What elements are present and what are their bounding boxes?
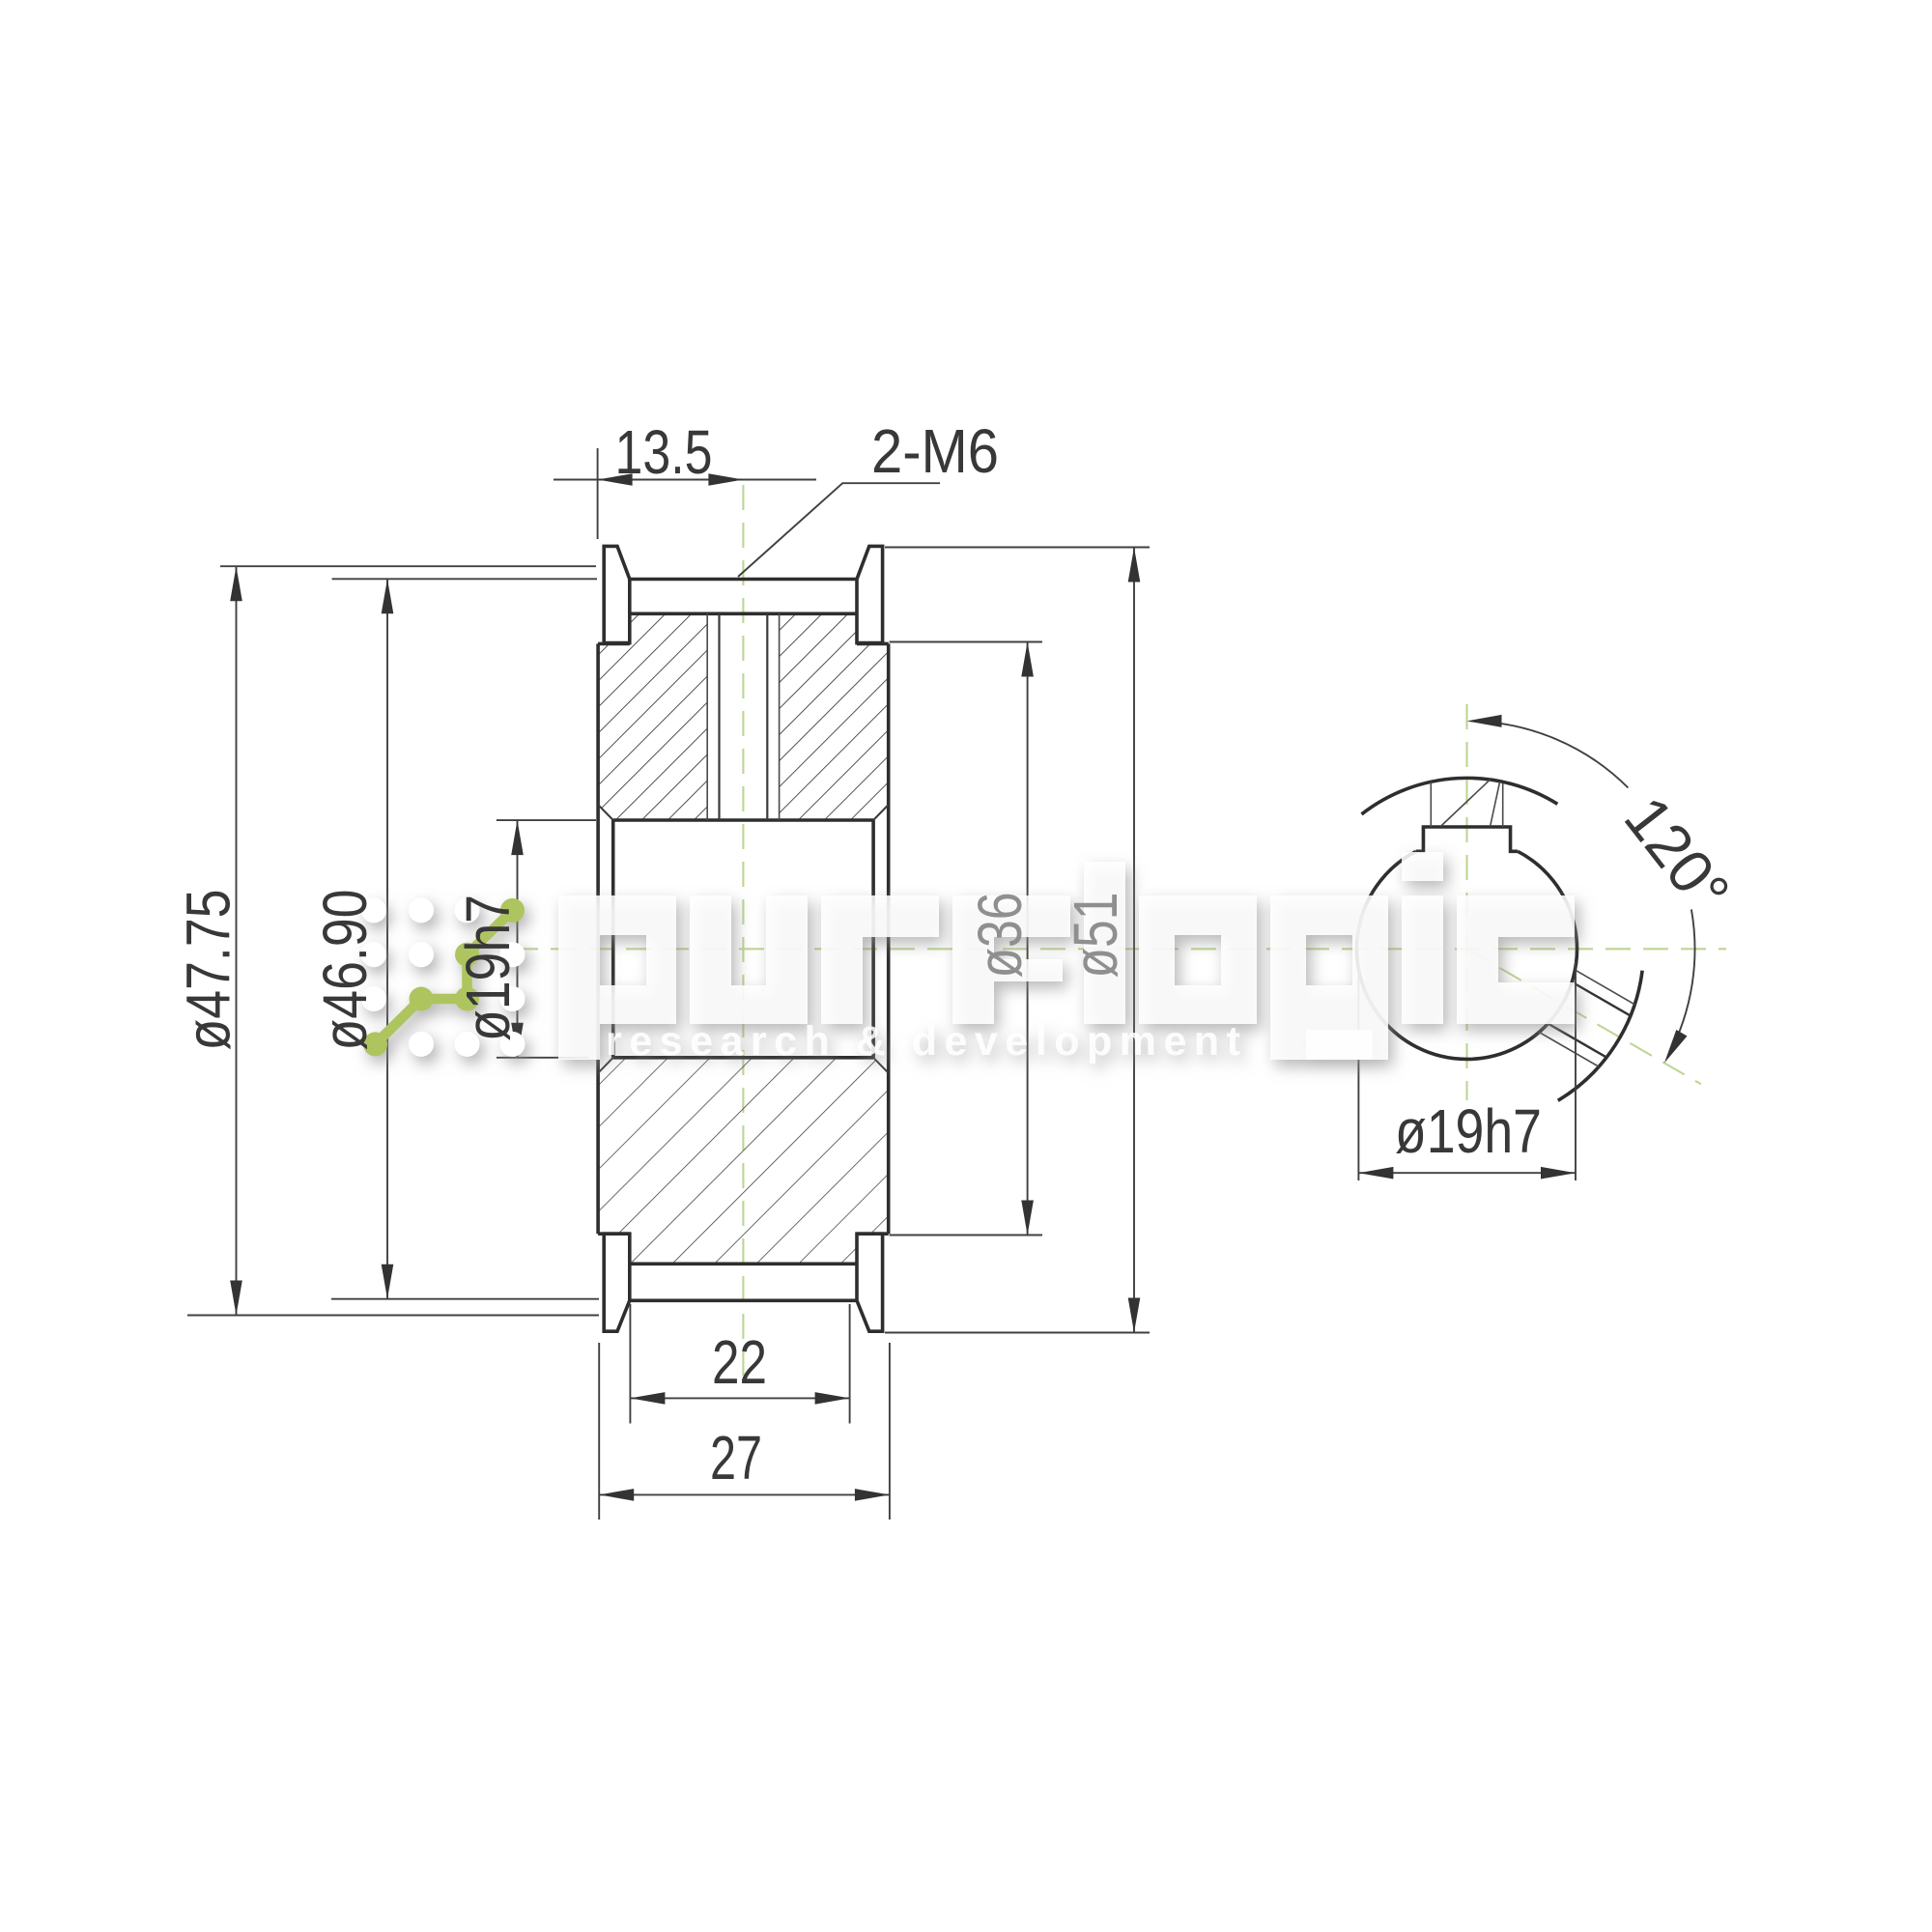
svg-text:ø19h7: ø19h7: [453, 895, 523, 1041]
svg-text:ø36: ø36: [965, 893, 1035, 979]
svg-text:ø46.90: ø46.90: [310, 890, 380, 1051]
svg-text:ø19h7: ø19h7: [1395, 1096, 1542, 1166]
svg-text:2-M6: 2-M6: [871, 416, 999, 486]
svg-text:27: 27: [710, 1423, 762, 1492]
svg-text:120°: 120°: [1611, 783, 1744, 925]
svg-text:research & development: research & development: [606, 1018, 1247, 1065]
svg-text:13.5: 13.5: [615, 417, 713, 487]
svg-text:ø47.75: ø47.75: [174, 890, 243, 1051]
svg-text:ø51: ø51: [1061, 893, 1130, 979]
svg-text:22: 22: [712, 1327, 767, 1397]
